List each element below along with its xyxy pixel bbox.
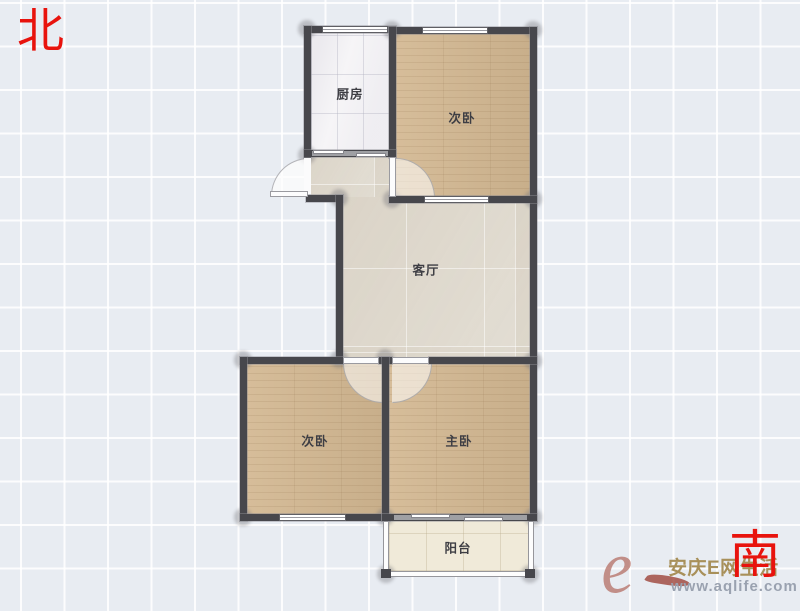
kitchen-label: 厨房 (336, 84, 363, 103)
kitchen-bedroom-shared-wall (389, 27, 396, 158)
balcony-label: 阳台 (444, 538, 471, 557)
compass-north-label: 北 (17, 9, 64, 56)
right-exterior-wall (530, 27, 537, 521)
bedroom-southwest-window (279, 514, 346, 521)
bedroom-southwest-door-leaf (343, 357, 379, 364)
balcony-corner-post (381, 569, 391, 578)
bedrooms-top-wall-west (240, 357, 343, 364)
balcony-sliding-door-panel (464, 517, 503, 521)
kitchen-left-wall (304, 26, 311, 158)
hallway-floor (311, 157, 389, 197)
bedroom-north-label: 次卧 (448, 108, 475, 127)
kitchen-sliding-door-panel (356, 153, 386, 157)
bedroom-north-interior-window (424, 196, 489, 203)
bedroom-master-label: 主卧 (445, 431, 472, 450)
floorplan-page: { "compass": { "north": "北", "south": "南… (0, 0, 800, 600)
bedroom-north-window (422, 27, 488, 34)
bedroom-southwest-left-wall (240, 357, 247, 521)
kitchen-window (322, 26, 388, 33)
bedrooms-partition-wall (382, 357, 389, 521)
kitchen-sliding-door-panel (313, 150, 344, 154)
compass-south-label: 南 (729, 531, 781, 583)
bedroom-southwest-label: 次卧 (301, 431, 328, 450)
balcony-sliding-door-panel (411, 514, 450, 518)
entry-door-leaf (270, 191, 308, 197)
balcony-bottom-rail (383, 571, 534, 577)
entry-door-opening (304, 158, 311, 194)
bedroom-north-door-leaf (389, 157, 396, 197)
bedroom-master-door-leaf (392, 357, 429, 364)
living-room-label: 客厅 (412, 260, 439, 279)
bedrooms-top-wall-east (429, 357, 537, 364)
watermark-logo-e: e (596, 529, 636, 606)
balcony-corner-post (525, 569, 535, 578)
living-left-wall (336, 195, 343, 364)
